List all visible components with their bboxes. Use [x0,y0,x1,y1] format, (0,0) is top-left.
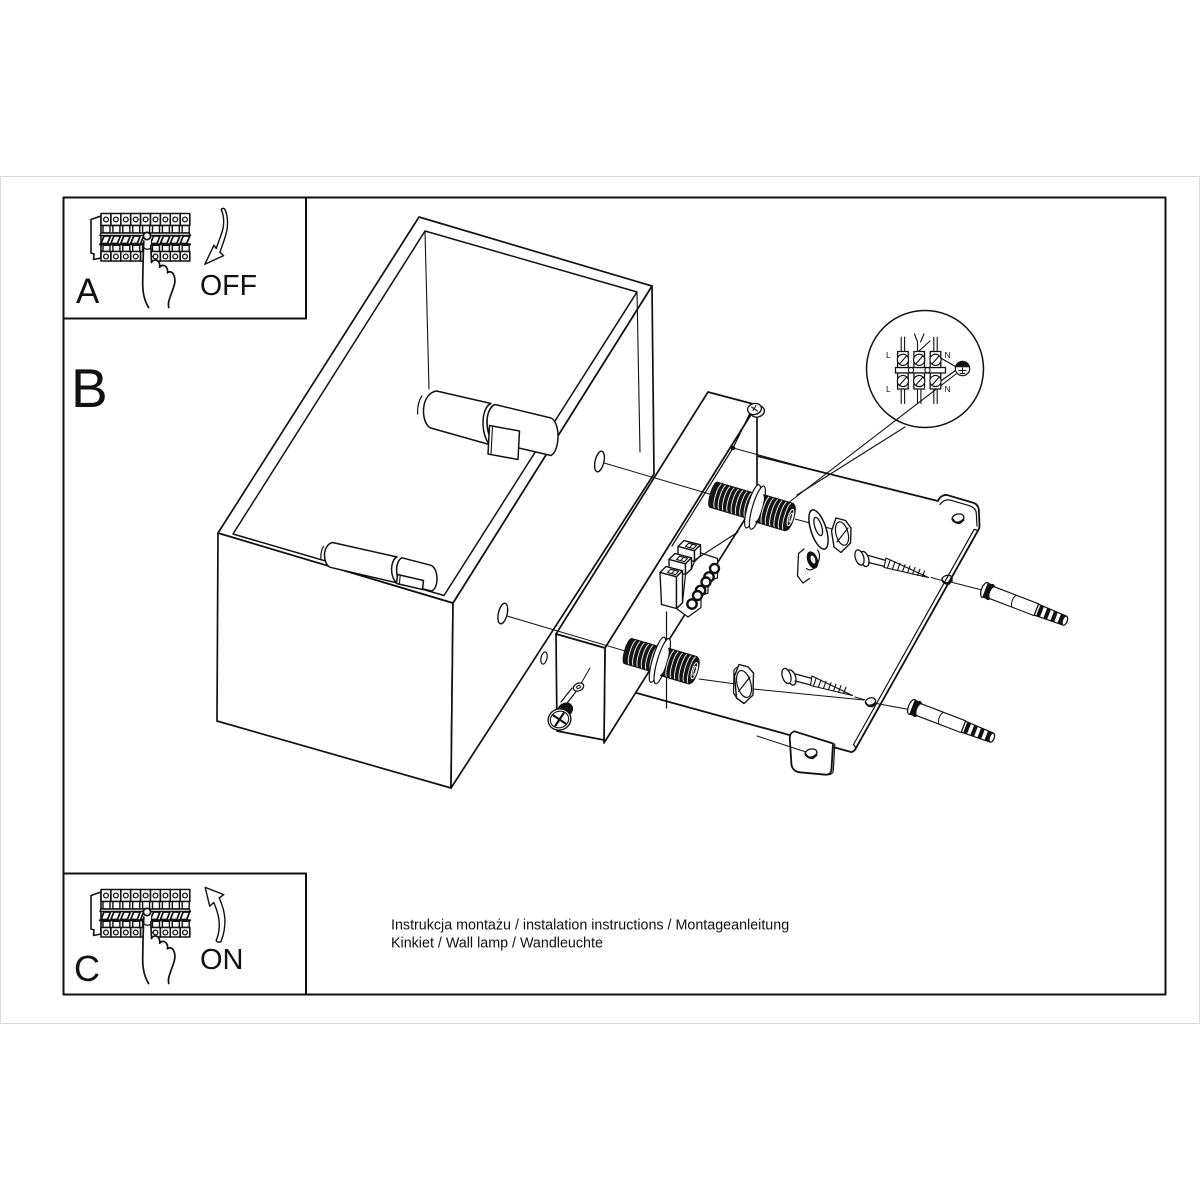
svg-text:L: L [886,384,891,394]
svg-text:N: N [945,384,951,394]
svg-text:Kinkiet / Wall lamp / Wandleuc: Kinkiet / Wall lamp / Wandleuchte [391,936,603,952]
svg-text:B: B [71,357,108,419]
svg-text:OFF: OFF [200,270,257,302]
svg-text:A: A [76,272,100,311]
svg-text:L: L [886,350,891,360]
svg-text:N: N [945,350,951,360]
svg-text:ON: ON [200,944,244,976]
svg-text:Instrukcja montażu / instalati: Instrukcja montażu / instalation instruc… [391,918,789,934]
svg-text:C: C [74,948,100,989]
